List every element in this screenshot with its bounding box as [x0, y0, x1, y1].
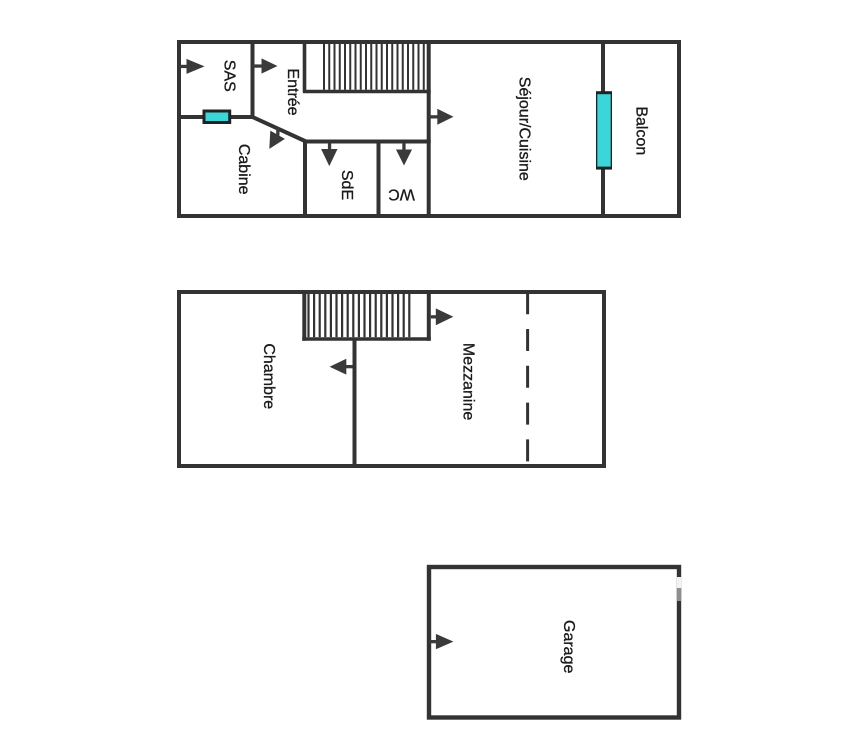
svg-text:Cabine: Cabine — [235, 144, 252, 195]
svg-text:Mezzanine: Mezzanine — [459, 343, 476, 420]
svg-text:Garage: Garage — [560, 620, 577, 673]
svg-text:Balcon: Balcon — [632, 106, 649, 155]
svg-text:SAS: SAS — [220, 60, 237, 92]
svg-text:WC: WC — [388, 186, 415, 203]
svg-text:SdE: SdE — [338, 170, 355, 200]
svg-text:Séjour/Cuisine: Séjour/Cuisine — [515, 77, 532, 181]
svg-text:Entrée: Entrée — [284, 68, 301, 115]
svg-text:Chambre: Chambre — [260, 343, 277, 409]
